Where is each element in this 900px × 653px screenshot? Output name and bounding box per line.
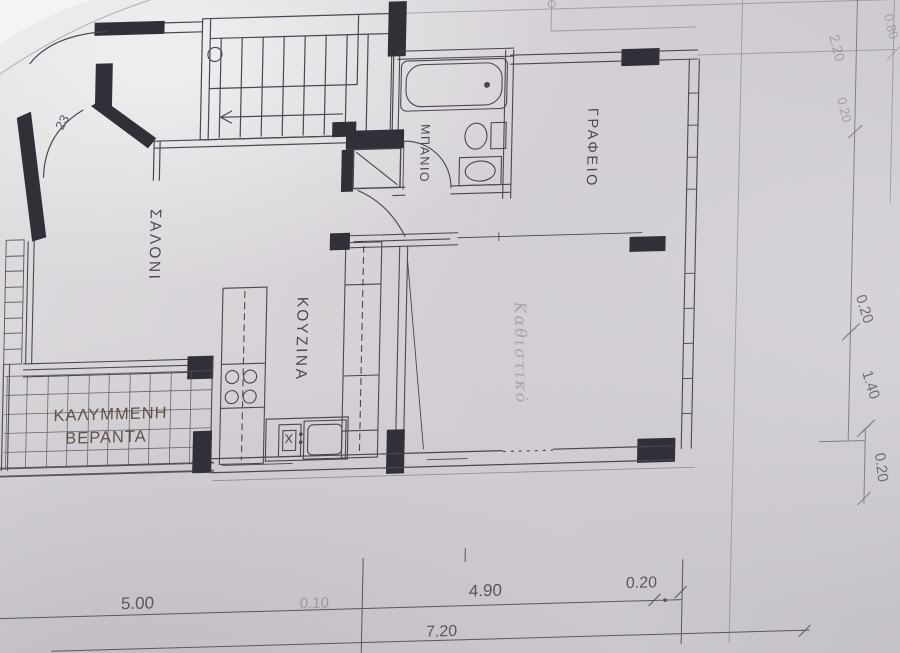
- kitchen-sink-icon: [299, 420, 346, 459]
- photo-of-floor-plan: 23 ΣΑΛΟΝΙ: [0, 0, 900, 653]
- dishwasher-icon: [278, 424, 301, 457]
- stove-icon: [225, 370, 257, 404]
- dim-bottom-total: 7.20: [426, 623, 458, 641]
- bathtub-icon: [401, 58, 508, 111]
- veranda-label-line2: ΒΕΡΑΝΤΑ: [65, 428, 147, 448]
- boundary-lines: [383, 0, 900, 652]
- salon-window-wall: [23, 359, 189, 377]
- dim-right-corner: 0.20: [871, 452, 891, 484]
- bathroom-label: ΜΠΑΝΙΟ: [417, 124, 432, 183]
- door-number-label: 23: [52, 112, 72, 132]
- dim-right-140: 1.40: [858, 368, 883, 401]
- dim-bottom-small: 0.20: [626, 574, 658, 592]
- office-window-wall: [681, 59, 699, 449]
- chamfer-wall: [90, 98, 157, 150]
- toilet-icon: [465, 122, 507, 149]
- dim-bottom-right: 4.90: [469, 581, 502, 601]
- floor-plan: 23 ΣΑΛΟΝΙ: [0, 0, 900, 653]
- dim-bottom-mid: 0.10: [300, 594, 330, 612]
- dim-right-020b: 0.20: [852, 292, 877, 325]
- salon-label: ΣΑΛΟΝΙ: [145, 209, 164, 282]
- bathroom-door-leaf: [403, 141, 404, 189]
- veranda-label-line1: ΚΑΛΥΜΜΕΝΗ: [53, 404, 167, 425]
- hall-door-arc: [357, 189, 406, 237]
- dim-bottom-left: 5.00: [121, 593, 154, 613]
- dim-right-080: 0.80: [881, 12, 900, 41]
- staircase: [200, 13, 394, 139]
- exterior-hatch: [4, 240, 25, 365]
- kitchen-label: ΚΟΥΖΙΝΑ: [292, 297, 311, 382]
- shaft-icon: [341, 129, 404, 192]
- page-curl: [0, 0, 150, 74]
- entry-area: [14, 14, 394, 242]
- dim-right-020a: 0.20: [834, 95, 855, 124]
- office-label: ΓΡΑΦΕΙΟ: [583, 108, 601, 188]
- dimension-lines-right: [818, 0, 900, 506]
- living-label-handwritten: Καθιστικό: [511, 300, 531, 405]
- washbasin-icon: [459, 156, 502, 185]
- bathroom: [393, 48, 514, 195]
- kitchen-counter: [219, 287, 267, 464]
- dim-right-220: 2.20: [826, 32, 848, 63]
